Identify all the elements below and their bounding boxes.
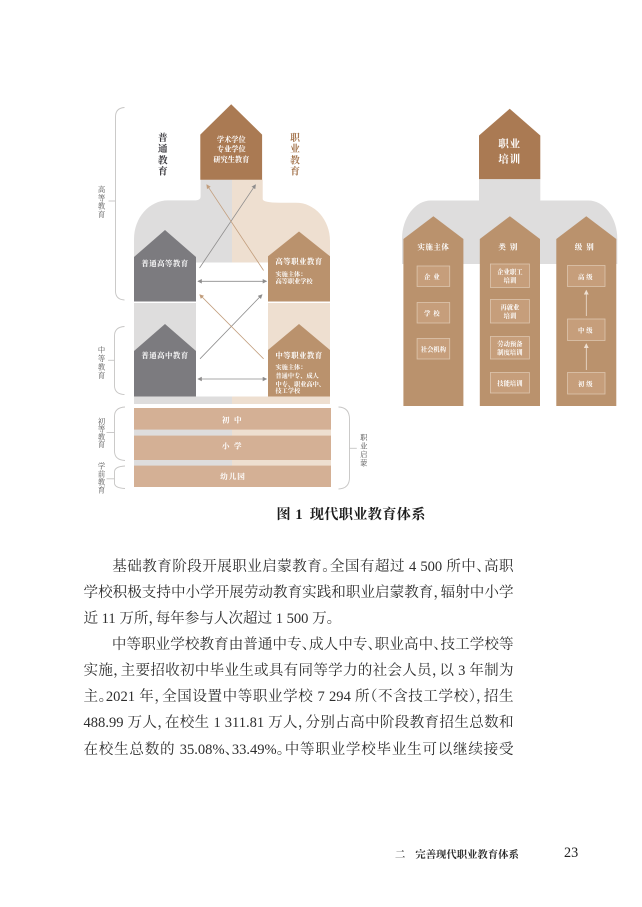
svg-text:中等职业教育: 中等职业教育 [275, 351, 322, 360]
svg-text:学前教育: 学前教育 [98, 462, 106, 495]
svg-text:学校: 学校 [424, 309, 443, 318]
svg-text:高等职业教育: 高等职业教育 [275, 257, 322, 266]
svg-text:社会机构: 社会机构 [421, 345, 447, 354]
svg-text:劳动预备: 劳动预备 [497, 339, 523, 348]
svg-text:制度培训: 制度培训 [497, 347, 522, 356]
svg-text:中专、职业高中、: 中专、职业高中、 [276, 380, 326, 388]
svg-text:初级: 初级 [578, 379, 595, 388]
svg-text:幼儿园: 幼儿园 [220, 471, 246, 481]
svg-text:培训: 培训 [504, 311, 517, 320]
svg-text:研究生教育: 研究生教育 [213, 155, 249, 164]
svg-text:再就业: 再就业 [500, 302, 520, 311]
svg-text:普通高中教育: 普通高中教育 [141, 351, 188, 360]
svg-text:实施主体：: 实施主体： [276, 271, 307, 279]
svg-text:级别: 级别 [575, 241, 598, 251]
svg-text:技工学校: 技工学校 [276, 387, 302, 395]
svg-text:职业教育: 职业教育 [290, 131, 301, 178]
svg-text:职业: 职业 [498, 137, 521, 150]
svg-text:高等职业学校: 高等职业学校 [276, 278, 314, 286]
svg-text:专业学位: 专业学位 [217, 145, 246, 154]
svg-text:培训: 培训 [498, 153, 521, 166]
svg-text:普通高等教育: 普通高等教育 [141, 259, 188, 268]
svg-text:中级: 中级 [578, 326, 595, 335]
svg-text:职业启蒙: 职业启蒙 [360, 433, 368, 468]
svg-text:学术学位: 学术学位 [217, 135, 246, 144]
svg-text:类别: 类别 [498, 241, 521, 251]
svg-text:实施主体：: 实施主体： [276, 364, 307, 372]
svg-text:普通教育: 普通教育 [158, 131, 168, 178]
svg-text:高级: 高级 [578, 272, 595, 281]
svg-text:初中: 初中 [222, 414, 246, 424]
svg-text:实施主体: 实施主体 [417, 241, 449, 251]
svg-text:企业职工: 企业职工 [497, 267, 523, 276]
svg-text:普通中专、成人: 普通中专、成人 [276, 372, 320, 380]
svg-text:技能培训: 技能培训 [497, 378, 522, 387]
svg-text:培训: 培训 [504, 275, 517, 284]
svg-text:企业: 企业 [424, 272, 443, 281]
svg-text:小学: 小学 [222, 441, 246, 451]
svg-text:高等教育: 高等教育 [98, 185, 106, 219]
svg-text:中等教育: 中等教育 [98, 346, 106, 380]
svg-text:初等教育: 初等教育 [98, 417, 106, 449]
